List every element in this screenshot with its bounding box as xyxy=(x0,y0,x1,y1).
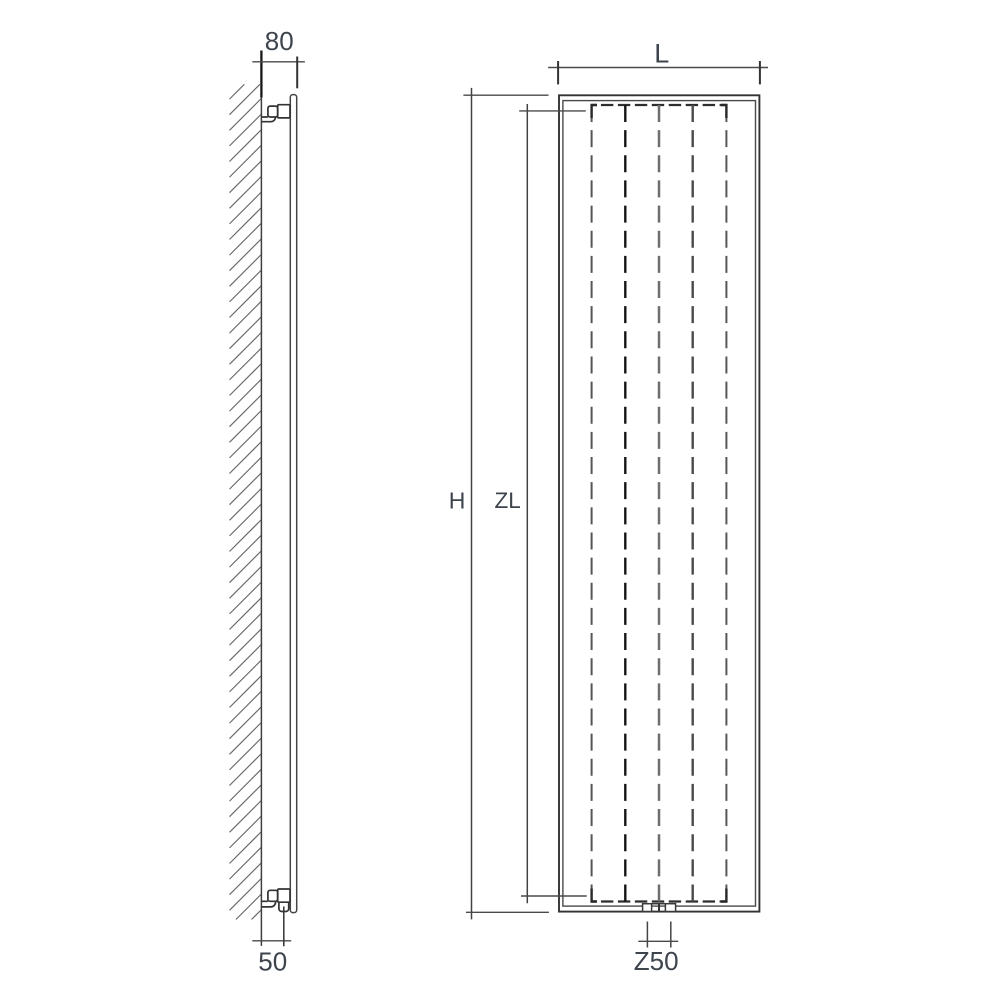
svg-text:80: 80 xyxy=(265,26,294,56)
svg-text:ZL: ZL xyxy=(494,488,520,513)
svg-text:Z50: Z50 xyxy=(634,946,679,976)
svg-text:50: 50 xyxy=(258,946,287,976)
svg-text:H: H xyxy=(449,488,466,514)
svg-text:L: L xyxy=(654,38,669,68)
